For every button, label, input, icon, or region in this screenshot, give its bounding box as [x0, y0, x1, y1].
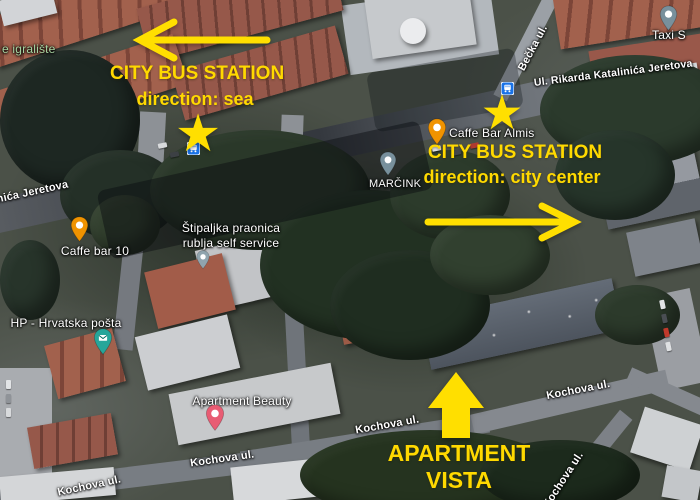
poi-label-stipaljka[interactable]: Štipaljka praonica rublja self service: [156, 221, 306, 251]
annotation-bus-sea-title: CITY BUS STATION: [110, 63, 280, 85]
car: [6, 380, 11, 389]
building-southeast-white-1: [630, 407, 700, 472]
lodging-pin-icon[interactable]: [205, 404, 225, 432]
star-icon: ★: [478, 90, 526, 138]
laundry-pin-icon[interactable]: [196, 250, 210, 270]
building-southeast-white-2: [661, 465, 700, 500]
generic-pin-icon[interactable]: [379, 151, 397, 177]
car: [6, 394, 11, 403]
car: [158, 142, 168, 149]
star-icon: ★: [172, 108, 224, 160]
building-center-white-west: [135, 314, 240, 390]
poi-label-stipaljka-line1: Štipaljka praonica: [156, 221, 306, 236]
arrow-left-icon: [122, 16, 272, 64]
poi-label-apartment-beauty[interactable]: Apartment Beauty: [182, 394, 302, 408]
arrow-up-icon: [428, 372, 484, 438]
annotation-apartment-line2: VISTA: [379, 467, 539, 494]
annotation-bus-center-direction: direction: city center: [412, 167, 612, 188]
poi-label-caffe-bar-10[interactable]: Caffe bar 10: [45, 244, 145, 258]
annotation-bus-center-title: CITY BUS STATION: [425, 142, 605, 164]
building-church-dome: [400, 18, 426, 44]
arrow-right-icon: [420, 202, 582, 242]
poi-label-taxi[interactable]: Taxi S: [652, 28, 686, 42]
poi-label-stipaljka-line2: rublja self service: [156, 236, 306, 251]
car: [6, 408, 11, 417]
annotation-apartment-line1: APARTMENT: [379, 440, 539, 467]
cafe-pin-icon[interactable]: [70, 216, 89, 243]
building-southwest-red-1: [44, 328, 126, 399]
post-office-pin-icon[interactable]: [93, 328, 113, 356]
building-east-gray-2: [626, 218, 700, 277]
poi-label-playground[interactable]: e igralište: [2, 42, 56, 56]
satellite-map[interactable]: nića Jeretova Ul. Rikarda Katalinića Jer…: [0, 0, 700, 500]
